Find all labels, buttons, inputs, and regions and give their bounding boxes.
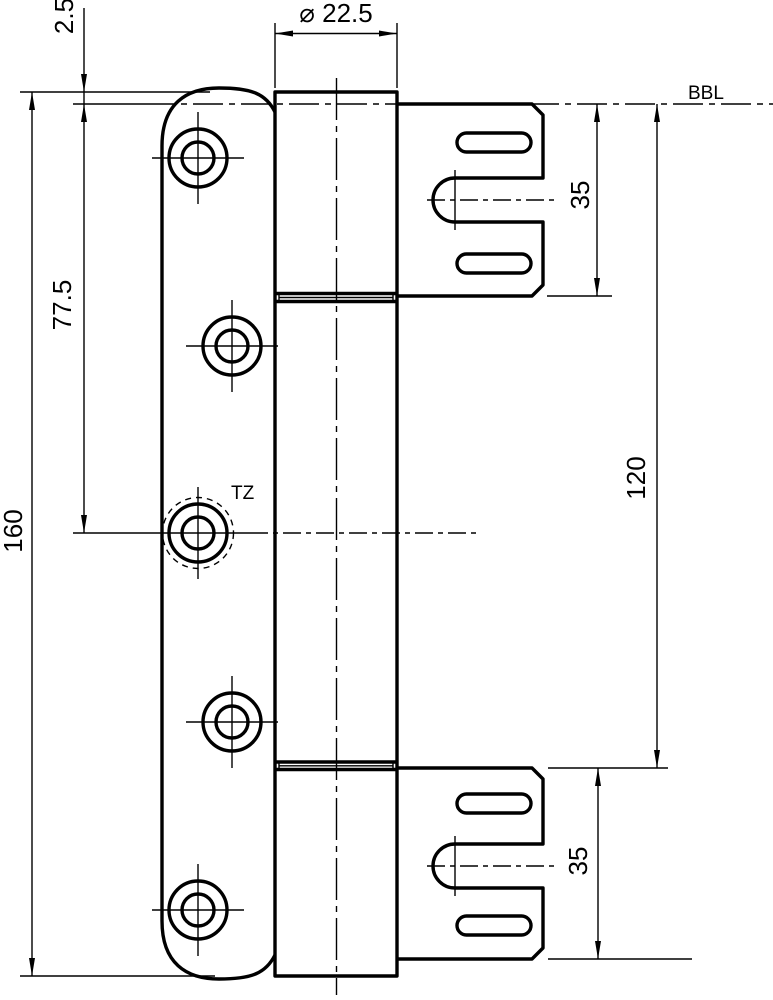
screw-hole-4 bbox=[186, 676, 278, 768]
dim-text-775: 77.5 bbox=[47, 280, 77, 331]
technical-drawing-canvas: BBL bbox=[0, 0, 773, 1000]
frame-plate-bottom bbox=[397, 768, 556, 959]
dia-arrow-left bbox=[275, 31, 293, 37]
knuckle-joint-bottom bbox=[275, 762, 397, 770]
frame-plate-top bbox=[397, 104, 556, 296]
tz-label: TZ bbox=[231, 483, 255, 504]
frame-plate-top-slot-upper bbox=[457, 133, 531, 152]
arrow-35top-down bbox=[594, 278, 600, 296]
arrow-120-down bbox=[654, 750, 660, 768]
arrow-35bot-down bbox=[595, 941, 601, 959]
dimension-right-group: 35 120 35 bbox=[547, 104, 692, 959]
arrow-35top-up bbox=[594, 104, 600, 122]
knuckle-joint-top bbox=[275, 294, 397, 302]
dim-text-35-bottom: 35 bbox=[563, 847, 593, 876]
dim-text-35-top: 35 bbox=[565, 181, 595, 210]
dimension-knuckle-diameter: ⌀ 22.5 bbox=[275, 0, 397, 88]
arrow-25-down bbox=[81, 74, 87, 92]
bbl-label: BBL bbox=[688, 83, 724, 104]
hinge-barrel bbox=[275, 78, 397, 995]
arrow-775-down bbox=[81, 515, 87, 533]
dim-text-25: 2.5 bbox=[49, 0, 79, 34]
dim-text-120: 120 bbox=[621, 456, 651, 499]
frame-plate-bottom-slot-upper bbox=[457, 794, 531, 813]
dimension-left-group: 2.5 77.5 160 bbox=[0, 0, 215, 976]
dia-dim-text: ⌀ 22.5 bbox=[299, 0, 372, 28]
frame-plate-top-slot-lower bbox=[457, 254, 531, 273]
screw-hole-2 bbox=[186, 300, 278, 392]
frame-plate-bottom-outline bbox=[397, 768, 543, 959]
hinge-drawing-svg: BBL bbox=[0, 0, 773, 1000]
arrow-160-down bbox=[29, 958, 35, 976]
dia-arrow-right bbox=[379, 31, 397, 37]
arrow-120-up bbox=[654, 104, 660, 122]
arrow-35bot-up bbox=[595, 768, 601, 786]
arrow-160-up bbox=[29, 92, 35, 110]
frame-plate-bottom-slot-lower bbox=[457, 916, 531, 935]
arrow-25-up bbox=[81, 104, 87, 122]
dim-text-160: 160 bbox=[0, 509, 28, 552]
